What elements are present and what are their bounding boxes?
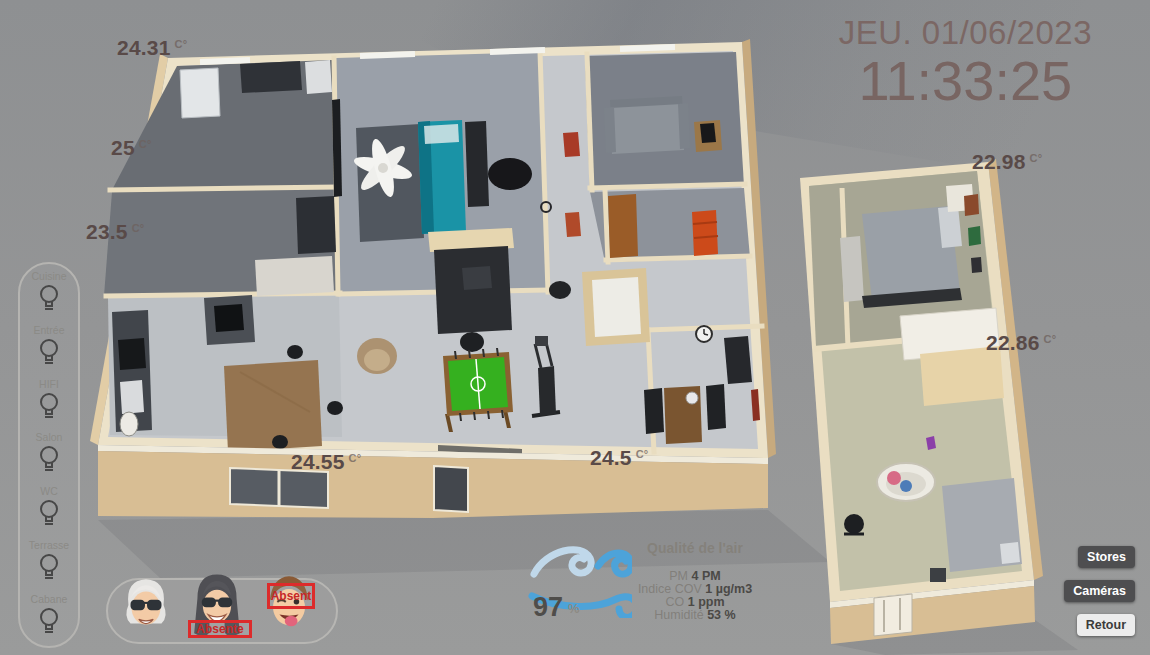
temperature-badge-6: 22.98C° <box>972 150 1042 174</box>
red-cabinet-2 <box>565 212 581 237</box>
light-label: WC <box>40 485 58 497</box>
light-label: Terrasse <box>29 539 69 551</box>
bulb-icon-cuisine[interactable] <box>38 283 60 313</box>
status-badge-absente: Absente <box>188 620 252 638</box>
light-label: Cabane <box>31 593 68 605</box>
bulb-icon-wc[interactable] <box>38 498 60 528</box>
light-item-hifi: HIFI <box>38 378 60 421</box>
light-item-salon: Salon <box>36 431 63 474</box>
red-cabinet <box>563 132 580 157</box>
home-automation-dashboard: 24.31C° 25C° 23.5C° 24.55C° 24.5C° 22.98… <box>0 0 1150 655</box>
annex-door <box>874 594 912 636</box>
mirror-wardrobe <box>582 268 650 346</box>
bulb-icon-salon[interactable] <box>38 444 60 474</box>
front-door <box>434 466 468 512</box>
temperature-badge-3: 23.5C° <box>86 220 144 244</box>
air-quality-title: Qualité de l'air <box>597 540 793 556</box>
bulb-icon-cabane[interactable] <box>38 606 60 636</box>
office-chair <box>844 514 864 534</box>
clock-widget: JEU. 01/06/2023 11:33:25 <box>839 14 1092 111</box>
bulb-icon-entree[interactable] <box>38 337 60 367</box>
light-item-terrasse: Terrasse <box>29 539 69 582</box>
bean-bag <box>488 158 532 190</box>
cameras-button[interactable]: Caméras <box>1064 580 1135 602</box>
clock-time: 11:33:25 <box>839 52 1092 111</box>
main-house <box>90 39 776 518</box>
wall-clock <box>696 326 712 342</box>
orange-shelf <box>692 210 718 256</box>
tv-cabinet <box>724 336 752 384</box>
front-windows <box>230 468 328 508</box>
light-label: Entrée <box>34 324 65 336</box>
temperature-badge-5: 24.5C° <box>590 446 648 470</box>
avatar-grandma[interactable] <box>122 574 170 638</box>
wind-value: 97% <box>533 592 580 623</box>
bulb-icon-terrasse[interactable] <box>38 552 60 582</box>
bulb-icon-hifi[interactable] <box>38 391 60 421</box>
temperature-badge-7: 22.86C° <box>986 331 1056 355</box>
annex-building <box>800 159 1043 644</box>
air-quality-widget: Qualité de l'air PM 4 PM Indice COV 1 µg… <box>597 540 793 622</box>
tan-wardrobe <box>920 346 1004 406</box>
wood-wardrobe <box>608 194 638 258</box>
light-label: HIFI <box>39 378 59 390</box>
clock-date: JEU. 01/06/2023 <box>839 14 1092 52</box>
lights-panel: Cuisine Entrée HIFI Salon WC Terrasse Ca… <box>18 262 80 648</box>
air-metric-humidity: Humidité 53 % <box>597 609 793 622</box>
temperature-badge-4: 24.55C° <box>291 450 361 474</box>
light-item-cabane: Cabane <box>31 593 68 636</box>
retour-button[interactable]: Retour <box>1077 614 1135 636</box>
status-badge-absent: Absent <box>267 583 315 609</box>
light-label: Salon <box>36 431 63 443</box>
temperature-badge-2: 25C° <box>111 136 152 160</box>
light-item-cuisine: Cuisine <box>31 270 66 313</box>
light-item-entree: Entrée <box>34 324 65 367</box>
stores-button[interactable]: Stores <box>1078 546 1135 568</box>
light-label: Cuisine <box>31 270 66 282</box>
temperature-badge-1: 24.31C° <box>117 36 187 60</box>
light-item-wc: WC <box>38 485 60 528</box>
